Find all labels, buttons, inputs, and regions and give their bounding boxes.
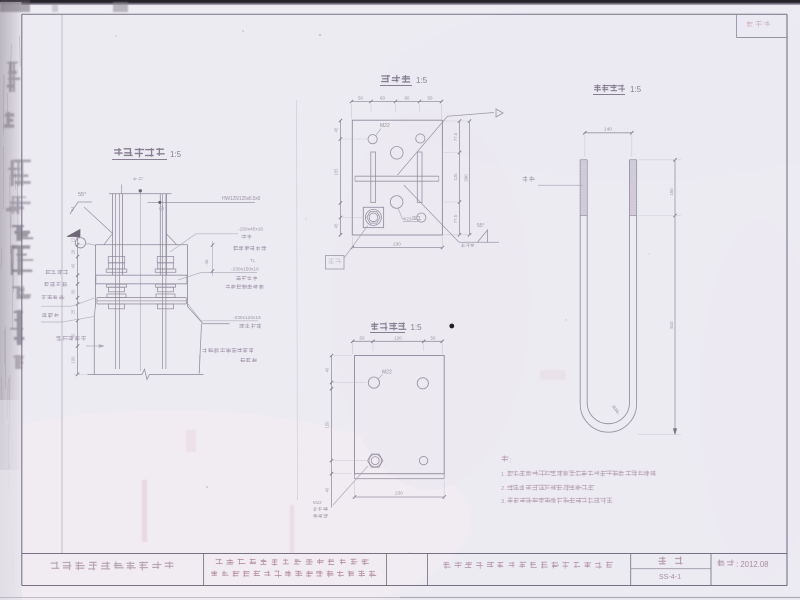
svg-text:55°: 55° [78, 192, 86, 198]
svg-text:125: 125 [453, 173, 458, 181]
svg-text:1:5: 1:5 [411, 323, 423, 332]
svg-text:1:5: 1:5 [170, 150, 182, 159]
svg-text:30: 30 [71, 289, 76, 294]
svg-text:60: 60 [405, 96, 410, 101]
svg-text:40: 40 [325, 367, 330, 372]
svg-text:77.5: 77.5 [453, 214, 458, 223]
svg-text:140: 140 [604, 127, 612, 132]
svg-text:50: 50 [428, 96, 433, 101]
svg-text:510: 510 [669, 321, 674, 329]
svg-text:Φ23: Φ23 [403, 216, 412, 221]
svg-text:50: 50 [360, 336, 365, 341]
svg-text:1.: 1. [501, 472, 506, 478]
svg-text:100: 100 [71, 356, 76, 364]
svg-text:28: 28 [71, 249, 76, 254]
svg-text:1:5: 1:5 [630, 85, 642, 94]
svg-text:SS-4-1: SS-4-1 [659, 572, 681, 581]
svg-text:-230x120x16: -230x120x16 [233, 315, 261, 321]
svg-text:150: 150 [325, 421, 330, 429]
svg-text:M22: M22 [380, 123, 390, 129]
svg-text:HW125/125x6.5x9: HW125/125x6.5x9 [222, 196, 261, 202]
svg-text:155: 155 [334, 168, 339, 176]
svg-text:50: 50 [431, 336, 436, 341]
svg-text:150: 150 [669, 188, 674, 196]
svg-text:25: 25 [71, 309, 76, 314]
svg-text:12: 12 [71, 237, 76, 242]
svg-text:230: 230 [395, 491, 403, 496]
svg-text:TL: TL [250, 258, 256, 263]
svg-text:50: 50 [358, 96, 363, 101]
svg-text:120: 120 [394, 336, 402, 341]
svg-text:3.: 3. [501, 499, 506, 505]
svg-text:1:5: 1:5 [416, 76, 428, 85]
svg-text:2.: 2. [501, 486, 506, 492]
svg-text:60: 60 [380, 96, 385, 101]
svg-text:: 2012.08: : 2012.08 [736, 560, 769, 569]
svg-text:50: 50 [71, 333, 76, 338]
svg-text:-150x45x16: -150x45x16 [238, 227, 263, 233]
svg-text:-230x150x16: -230x150x16 [231, 267, 259, 273]
svg-text:2: 2 [71, 207, 74, 213]
svg-text::: : [510, 458, 512, 465]
svg-text:40: 40 [325, 487, 330, 492]
svg-text:M22: M22 [313, 500, 322, 505]
svg-text:77.5: 77.5 [453, 132, 458, 141]
svg-text:45: 45 [334, 127, 339, 132]
svg-text:45: 45 [204, 259, 209, 264]
svg-text:230: 230 [393, 242, 401, 247]
svg-text:55°: 55° [477, 223, 485, 229]
svg-text:260: 260 [464, 174, 469, 182]
svg-text:45: 45 [334, 223, 339, 228]
svg-text:M22: M22 [382, 370, 392, 376]
svg-text:40: 40 [71, 263, 76, 268]
